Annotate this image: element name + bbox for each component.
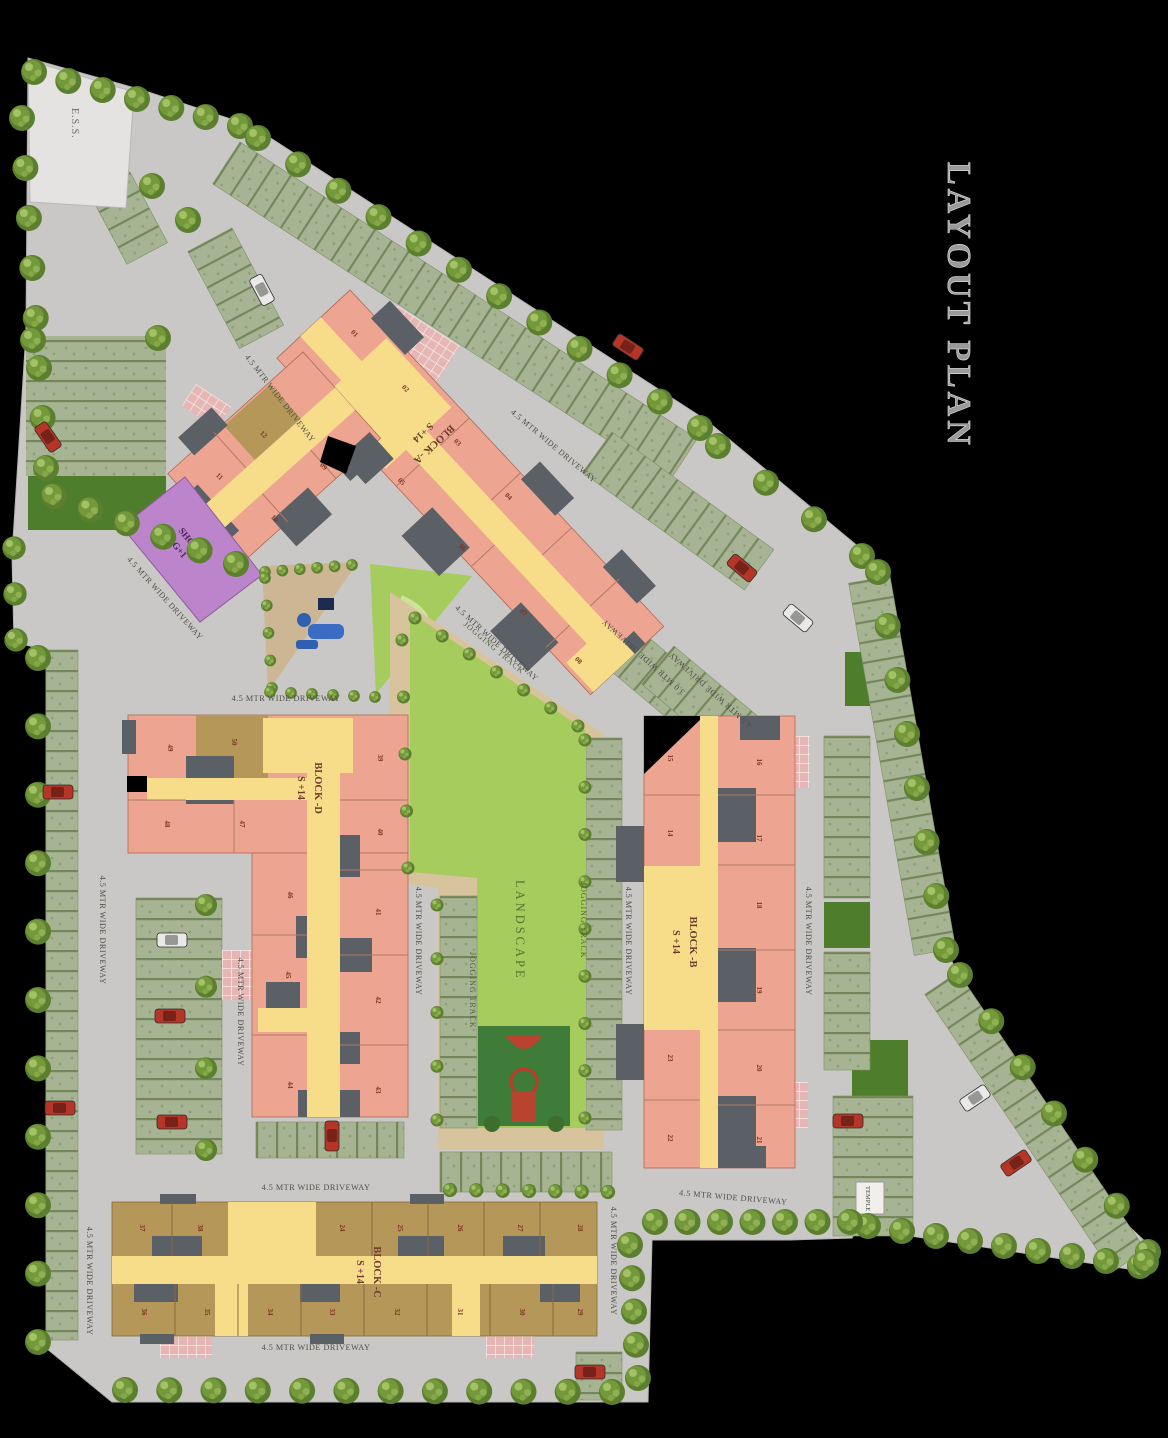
tree-icon	[621, 1299, 647, 1325]
tree-icon	[397, 691, 410, 704]
lawn	[824, 902, 870, 948]
unit-number: 19	[755, 987, 763, 995]
tree-icon	[187, 537, 213, 563]
tree-icon	[277, 565, 289, 577]
tree-icon	[904, 775, 930, 801]
tree-icon	[1041, 1101, 1067, 1127]
tree-icon	[894, 721, 920, 747]
tree-icon	[366, 204, 392, 230]
driveway-label: 4.5 MTR WIDE DRIVEWAY	[414, 887, 423, 996]
tree-icon	[150, 524, 176, 550]
unit-number: 43	[374, 1087, 382, 1095]
car-icon	[575, 1365, 605, 1379]
car-icon	[157, 1115, 187, 1129]
tree-icon	[124, 86, 150, 112]
tree-icon	[245, 1378, 271, 1404]
tree-icon	[991, 1233, 1017, 1259]
tree-icon	[1072, 1147, 1098, 1173]
tree-icon	[567, 336, 593, 362]
tree-icon	[346, 559, 358, 571]
tree-icon	[1093, 1248, 1119, 1274]
tree-icon	[1010, 1054, 1036, 1080]
tree-icon	[805, 1209, 831, 1235]
tree-icon	[625, 1365, 651, 1391]
tree-icon	[978, 1008, 1004, 1034]
tree-icon	[114, 510, 140, 536]
unit-number: 20	[755, 1065, 763, 1073]
tree-icon	[422, 1378, 448, 1404]
tree-icon	[1059, 1243, 1085, 1269]
unit-number: 29	[576, 1309, 584, 1317]
tree-icon	[865, 559, 891, 585]
crosswalk	[486, 1336, 534, 1358]
tree-icon	[707, 1209, 733, 1235]
tree-icon	[3, 582, 26, 605]
tree-icon	[20, 327, 46, 353]
tree-icon	[947, 962, 973, 988]
tree-icon	[884, 667, 910, 693]
jogging-track-label: JOGGING TRACK	[468, 952, 477, 1029]
tree-icon	[875, 613, 901, 639]
tree-icon	[112, 1377, 138, 1403]
tree-icon	[599, 1379, 625, 1405]
unit-number: 36	[140, 1309, 148, 1317]
tree-icon	[259, 572, 271, 584]
tree-icon	[544, 702, 557, 715]
unit-number: 26	[456, 1225, 464, 1233]
driveway-label: 4.5 MTR WIDE DRIVEWAY	[98, 876, 107, 985]
tree-icon	[402, 862, 415, 875]
tree-icon	[490, 666, 503, 679]
landscape-label: LANDSCAPE	[513, 880, 527, 981]
unit-number: 23	[666, 1055, 674, 1063]
tree-icon	[223, 551, 249, 577]
tree-icon	[431, 1114, 444, 1127]
driveway-label: 4.5 MTR WIDE DRIVEWAY	[232, 694, 341, 703]
unit-number: 27	[516, 1225, 524, 1233]
tree-icon	[145, 325, 171, 351]
tree-icon	[933, 937, 959, 963]
tree-icon	[139, 173, 165, 199]
tree-icon	[601, 1185, 615, 1199]
tree-icon	[289, 1378, 315, 1404]
tree-icon	[25, 1192, 51, 1218]
unit-number: 16	[755, 759, 763, 767]
tree-icon	[294, 563, 306, 575]
tree-icon	[77, 497, 103, 523]
tree-icon	[156, 1377, 182, 1403]
tree-icon	[431, 952, 444, 965]
layout-plan-canvas: E.S.S. BLOCK	[0, 0, 1168, 1438]
jogging-track-label: JOGGING TRACK	[579, 882, 588, 959]
tree-icon	[41, 483, 67, 509]
unit-number: 34	[266, 1309, 274, 1317]
tree-icon	[522, 1184, 536, 1198]
svg-text:S +14: S +14	[295, 776, 306, 800]
tree-icon	[21, 59, 47, 85]
unit-number: 35	[203, 1309, 211, 1317]
tree-icon	[261, 600, 273, 612]
tree-icon	[333, 1378, 359, 1404]
block-c: BLOCK -C S +14	[112, 1194, 597, 1344]
unit-number: 31	[456, 1309, 464, 1317]
tree-icon	[579, 734, 592, 747]
svg-text:BLOCK -C: BLOCK -C	[371, 1246, 382, 1298]
tree-icon	[12, 155, 38, 181]
tree-icon	[446, 257, 472, 283]
tree-icon	[619, 1265, 645, 1291]
temple-label: TEMPLE	[864, 1186, 871, 1211]
unit-number: 15	[666, 755, 674, 763]
tree-icon	[263, 627, 275, 639]
tree-icon	[923, 1223, 949, 1249]
tree-icon	[957, 1228, 983, 1254]
tree-icon	[400, 805, 413, 818]
unit-number: 47	[238, 821, 246, 829]
unit-number: 37	[138, 1225, 146, 1233]
unit-number: 46	[286, 892, 294, 900]
tree-icon	[579, 970, 592, 983]
tree-icon	[311, 562, 323, 574]
tree-icon	[579, 1112, 592, 1125]
tree-icon	[923, 883, 949, 909]
tree-icon	[579, 781, 592, 794]
tree-icon	[496, 1184, 510, 1198]
unit-number: 22	[666, 1135, 674, 1143]
tree-icon	[378, 1378, 404, 1404]
unit-number: 18	[755, 902, 763, 910]
tree-icon	[16, 205, 42, 231]
tree-icon	[889, 1218, 915, 1244]
car-icon	[43, 785, 73, 799]
bush-icon	[484, 1116, 500, 1132]
unit-number: 32	[393, 1309, 401, 1317]
svg-text:BLOCK -D: BLOCK -D	[312, 762, 323, 814]
tree-icon	[195, 976, 217, 998]
svg-text:S +14: S +14	[354, 1260, 365, 1284]
tree-icon	[329, 561, 341, 573]
unit-number: 49	[166, 745, 174, 753]
unit-number: 44	[286, 1082, 294, 1090]
tree-icon	[526, 310, 552, 336]
tree-icon	[325, 178, 351, 204]
tree-icon	[579, 1017, 592, 1030]
unit-number: 40	[376, 829, 384, 837]
tree-icon	[607, 362, 633, 388]
unit-number: 45	[284, 972, 292, 980]
tree-icon	[25, 1124, 51, 1150]
svg-text:S +14: S +14	[670, 930, 681, 954]
tree-icon	[555, 1379, 581, 1405]
tree-icon	[1133, 1249, 1159, 1275]
tree-icon	[675, 1209, 701, 1235]
tree-icon	[705, 433, 731, 459]
unit-number: 30	[518, 1309, 526, 1317]
tree-icon	[837, 1209, 863, 1235]
tree-icon	[195, 1057, 217, 1079]
tree-icon	[25, 645, 51, 671]
tree-icon	[201, 1377, 227, 1403]
tree-icon	[195, 1139, 217, 1161]
tree-icon	[158, 95, 184, 121]
tree-icon	[25, 1329, 51, 1355]
tree-icon	[617, 1232, 643, 1258]
tree-icon	[55, 68, 81, 94]
tree-icon	[396, 634, 409, 647]
unit-number: 33	[328, 1309, 336, 1317]
tree-icon	[25, 1055, 51, 1081]
tree-icon	[348, 690, 360, 702]
bush-icon	[548, 1116, 564, 1132]
car-icon	[155, 1009, 185, 1023]
tree-icon	[4, 628, 27, 651]
tree-icon	[436, 630, 449, 643]
unit-number: 41	[374, 909, 382, 917]
tree-icon	[623, 1332, 649, 1358]
tree-icon	[914, 829, 940, 855]
tree-icon	[195, 894, 217, 916]
tree-icon	[90, 77, 116, 103]
ess-label: E.S.S.	[69, 108, 80, 139]
car-icon	[157, 933, 187, 947]
tree-icon	[575, 1185, 589, 1199]
car-icon	[45, 1101, 75, 1115]
driveway-label: 4.5 MTR WIDE DRIVEWAY	[804, 887, 813, 996]
unit-number: 28	[576, 1225, 584, 1233]
driveway-label: 4.5 MTR WIDE DRIVEWAY	[262, 1343, 371, 1352]
tree-icon	[486, 283, 512, 309]
tree-icon	[25, 1261, 51, 1287]
parking-strip	[46, 650, 78, 1340]
tree-icon	[431, 1060, 444, 1073]
unit-number: 14	[666, 830, 674, 838]
parking-strip	[824, 736, 870, 898]
tree-icon	[463, 648, 476, 661]
tree-icon	[647, 389, 673, 415]
tree-icon	[772, 1209, 798, 1235]
tree-icon	[579, 828, 592, 841]
tree-icon	[2, 536, 25, 559]
car-icon	[325, 1121, 339, 1151]
tree-icon	[25, 713, 51, 739]
car-icon	[612, 333, 645, 361]
unit-number: 25	[396, 1225, 404, 1233]
driveway-label: 4.5 MTR WIDE DRIVEWAY	[609, 1207, 618, 1316]
tree-icon	[399, 748, 412, 761]
driveway-label: 4.5 MTR WIDE DRIVEWAY	[262, 1183, 371, 1192]
tree-icon	[431, 1006, 444, 1019]
tree-icon	[1104, 1193, 1130, 1219]
tree-icon	[431, 899, 444, 912]
tree-icon	[33, 455, 59, 481]
tree-icon	[406, 231, 432, 257]
tree-icon	[369, 691, 381, 703]
unit-number: 50	[230, 739, 238, 747]
tree-icon	[548, 1184, 562, 1198]
tree-icon	[23, 305, 49, 331]
unit-number: 39	[376, 755, 384, 763]
tree-icon	[19, 255, 45, 281]
tree-icon	[511, 1379, 537, 1405]
tree-icon	[25, 850, 51, 876]
driveway-label: 4.5 MTR WIDE DRIVEWAY	[236, 958, 245, 1067]
tree-icon	[285, 151, 311, 177]
tree-icon	[245, 125, 271, 151]
driveway-label: 4.5 MTR WIDE DRIVEWAY	[624, 887, 633, 996]
car-icon	[833, 1114, 863, 1128]
tree-icon	[9, 105, 35, 131]
tree-icon	[572, 720, 585, 733]
tree-icon	[517, 684, 530, 697]
unit-number: 48	[163, 821, 171, 829]
tree-icon	[1025, 1238, 1051, 1264]
layout-plan-page: E.S.S. BLOCK	[0, 0, 1168, 1438]
tree-icon	[801, 506, 827, 532]
tree-icon	[740, 1209, 766, 1235]
tree-icon	[469, 1183, 483, 1197]
tree-icon	[579, 1064, 592, 1077]
tree-icon	[443, 1183, 457, 1197]
tree-icon	[466, 1379, 492, 1405]
tree-icon	[753, 470, 779, 496]
driveway-label: 4.5 MTR WIDE DRIVEWAY	[85, 1227, 94, 1336]
parking-strip	[824, 952, 870, 1070]
tree-icon	[175, 207, 201, 233]
tree-icon	[642, 1209, 668, 1235]
unit-number: 24	[338, 1225, 346, 1233]
unit-number: 17	[755, 835, 763, 843]
court-key	[512, 1092, 536, 1122]
unit-number: 38	[196, 1225, 204, 1233]
tree-icon	[193, 104, 219, 130]
unit-number: 42	[374, 997, 382, 1005]
tree-icon	[25, 919, 51, 945]
tree-icon	[25, 987, 51, 1013]
svg-text:BLOCK -B: BLOCK -B	[687, 916, 698, 967]
page-title: LAYOUT PLAN	[940, 162, 977, 449]
unit-number: 21	[755, 1137, 763, 1145]
tree-icon	[26, 355, 52, 381]
tree-icon	[264, 655, 276, 667]
tree-icon	[409, 612, 422, 625]
